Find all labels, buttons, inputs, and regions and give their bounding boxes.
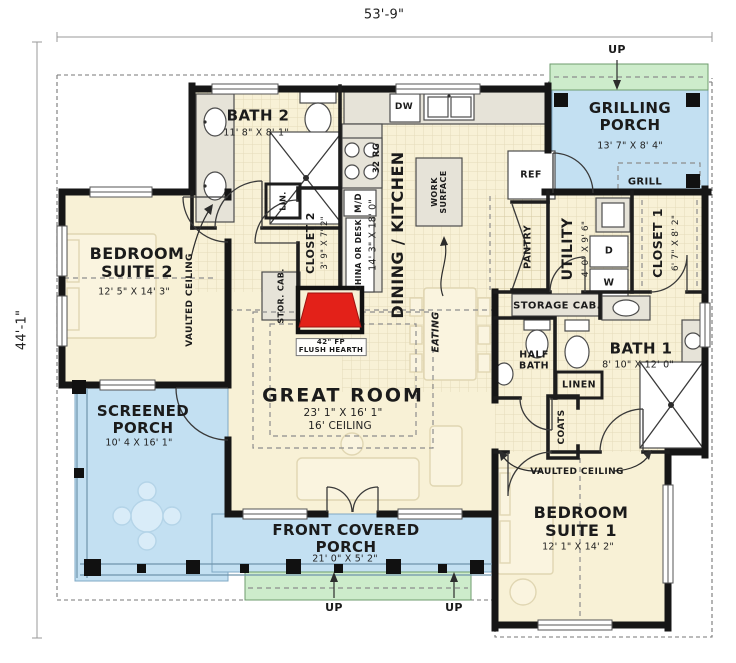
- closet1-label: CLOSET 1: [651, 208, 665, 278]
- bath1-dims: 8' 10" X 12' 0": [602, 361, 674, 372]
- closet2-dims: 3' 9" X 7' 2": [321, 216, 331, 269]
- fireplace-label: 42" FP FLUSH HEARTH: [296, 338, 367, 356]
- half-bath-label: HALF BATH: [511, 350, 557, 371]
- linen-label: LINEN: [562, 381, 596, 392]
- bedroom-suite2-label: BEDROOM SUITE 2: [71, 245, 203, 281]
- window: [243, 509, 307, 519]
- window: [57, 296, 67, 346]
- overall-width-dimension: 53'-9": [364, 9, 404, 24]
- window: [90, 187, 152, 197]
- great-room-label: GREAT ROOM: [262, 385, 424, 406]
- sofa: [297, 458, 419, 500]
- window: [396, 84, 480, 94]
- window: [212, 84, 278, 94]
- toilet-bowl: [565, 336, 589, 368]
- work-surface-label: WORK SURFACE: [430, 164, 448, 220]
- window: [700, 303, 710, 347]
- range-label: 32 RG: [373, 143, 383, 173]
- bath2-label: BATH 2: [227, 108, 290, 125]
- stor-cab-label: STOR. CAB.: [276, 268, 285, 323]
- ref-label: REF: [520, 171, 542, 182]
- bedroom-suite2-dims: 12' 5" X 14' 3": [98, 288, 170, 299]
- porch-table: [131, 500, 163, 532]
- window: [538, 620, 612, 630]
- toilet-tank: [565, 320, 589, 331]
- front-porch-label: FRONT COVERED PORCH: [251, 522, 441, 556]
- grilling-porch-dims: 13' 7" X 8' 4": [597, 142, 663, 153]
- up-label-bottom-left: UP: [325, 602, 343, 614]
- lin-closet-label: LIN.: [278, 191, 287, 210]
- bedroom-suite1-dims: 12' 1" X 14' 2": [542, 543, 614, 554]
- screened-porch-label: SCREENED PORCH: [83, 403, 203, 437]
- eating-label: EATING: [432, 311, 443, 352]
- coats-label: COATS: [557, 410, 567, 445]
- front-porch-dims: 21' 0" X 5' 2": [312, 555, 378, 566]
- toilet-tank: [300, 92, 336, 103]
- window: [663, 485, 673, 583]
- bath1-label: BATH 1: [610, 341, 673, 358]
- toilet-tank: [524, 320, 550, 330]
- closet2-label: CLOSET 2: [305, 212, 317, 274]
- utility-dims: 4' 0" X 9' 6": [581, 221, 591, 277]
- screened-porch-dims: 10' 4 X 16' 1": [105, 439, 172, 450]
- dining-kitchen-label: DINING / KITCHEN: [389, 151, 407, 318]
- up-label-top: UP: [608, 44, 626, 56]
- vaulted-ceiling-label-1: VAULTED CEILING: [530, 467, 624, 477]
- dishwasher-label: DW: [395, 102, 413, 112]
- fireplace: [298, 288, 362, 332]
- floor-plan: 53'-9" 44'-1" UP UP UP GRILLING PORCH 13…: [0, 0, 736, 663]
- washer-label: W: [604, 279, 615, 290]
- window: [57, 226, 67, 276]
- grilling-porch-label: GRILLING PORCH: [574, 100, 686, 134]
- overall-height-dimension: 44'-1": [16, 310, 31, 350]
- pantry-label: PANTRY: [524, 225, 535, 269]
- window: [100, 380, 155, 390]
- front-porch-steps: [245, 572, 471, 600]
- sink: [204, 172, 226, 200]
- microwave-label: M/D: [355, 193, 365, 213]
- storage-cab-label: STORAGE CAB.: [513, 300, 601, 311]
- dining-kitchen-dims: 14' 3" X 18' 0": [369, 199, 380, 271]
- great-room-dims: 23' 1" X 16' 1": [303, 408, 382, 420]
- dryer-label: D: [605, 247, 613, 258]
- grill-label: GRILL: [628, 176, 662, 187]
- great-room-ceiling: 16' CEILING: [308, 421, 372, 433]
- china-or-desk-label: CHINA OR DESK: [355, 219, 363, 291]
- closet1-dims: 6' 7" X 8' 2": [671, 215, 681, 271]
- bedroom-suite1-label: BEDROOM SUITE 1: [515, 504, 647, 540]
- window: [398, 509, 462, 519]
- vaulted-ceiling-label-2: VAULTED CEILING: [185, 253, 195, 347]
- bath2-dims: 11' 8" X 8' 1": [223, 129, 289, 140]
- up-label-bottom-right: UP: [445, 602, 463, 614]
- toilet-bowl: [305, 103, 331, 135]
- utility-label: UTILITY: [561, 218, 577, 281]
